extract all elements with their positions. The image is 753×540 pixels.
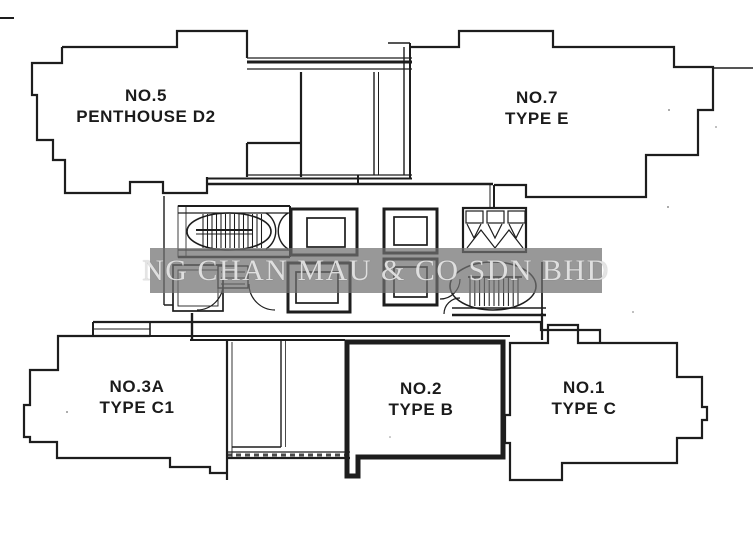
- unit-label-no3a: NO.3A TYPE C1: [99, 376, 174, 418]
- service-rooms: [190, 340, 350, 480]
- floor-plan: NO.5 PENTHOUSE D2 NO.7 TYPE E NO.3A TYPE…: [0, 0, 753, 540]
- unit-label-no7: NO.7 TYPE E: [505, 87, 569, 129]
- unit-type: TYPE C: [551, 398, 616, 419]
- unit-label-no1: NO.1 TYPE C: [551, 377, 616, 419]
- vent-shafts: [463, 208, 526, 252]
- unit-type: TYPE C1: [99, 397, 174, 418]
- watermark-text: NG CHAN MAU & CO SDN BHD: [142, 254, 610, 288]
- watermark-band: NG CHAN MAU & CO SDN BHD: [150, 248, 602, 293]
- unit-type: TYPE E: [505, 108, 569, 129]
- unit-label-no5: NO.5 PENTHOUSE D2: [76, 85, 215, 127]
- top-corridor-walls: [207, 43, 412, 184]
- unit-number: NO.7: [505, 87, 569, 108]
- unit-label-no2: NO.2 TYPE B: [388, 378, 453, 420]
- unit-number: NO.3A: [99, 376, 174, 397]
- unit-type: PENTHOUSE D2: [76, 106, 215, 127]
- unit-type: TYPE B: [388, 399, 453, 420]
- unit-number: NO.1: [551, 377, 616, 398]
- unit-number: NO.2: [388, 378, 453, 399]
- unit-number: NO.5: [76, 85, 215, 106]
